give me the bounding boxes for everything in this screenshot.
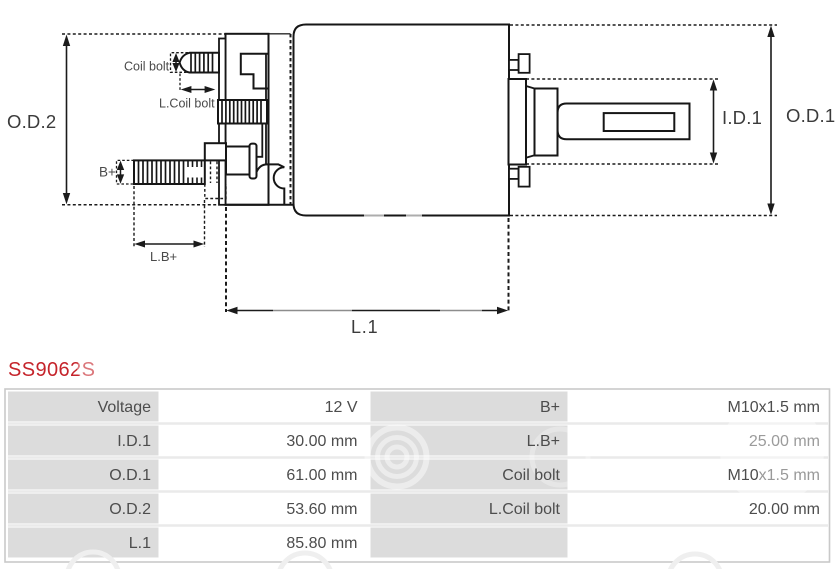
svg-text:L.Coil bolt: L.Coil bolt bbox=[489, 501, 561, 518]
svg-text:L.1: L.1 bbox=[351, 317, 378, 337]
svg-text:B+: B+ bbox=[540, 399, 560, 416]
svg-text:O.D.2: O.D.2 bbox=[7, 111, 56, 132]
svg-text:Coil bolt: Coil bolt bbox=[502, 467, 560, 484]
svg-text:M10x1.5 mm: M10x1.5 mm bbox=[728, 399, 820, 416]
svg-text:85.80 mm: 85.80 mm bbox=[286, 535, 357, 552]
svg-text:B+: B+ bbox=[99, 165, 116, 180]
svg-text:Voltage: Voltage bbox=[98, 399, 151, 416]
svg-text:O.D.2: O.D.2 bbox=[109, 501, 151, 518]
svg-text:O.D.1: O.D.1 bbox=[109, 467, 151, 484]
svg-text:L.B+: L.B+ bbox=[527, 433, 560, 450]
svg-text:I.D.1: I.D.1 bbox=[722, 107, 762, 128]
svg-text:30.00 mm: 30.00 mm bbox=[286, 433, 357, 450]
svg-text:M10x1.5 mm: M10x1.5 mm bbox=[728, 467, 820, 484]
svg-text:61.00 mm: 61.00 mm bbox=[286, 467, 357, 484]
svg-text:20.00 mm: 20.00 mm bbox=[749, 501, 820, 518]
svg-text:53.60 mm: 53.60 mm bbox=[286, 501, 357, 518]
svg-text:L.Coil bolt: L.Coil bolt bbox=[159, 97, 215, 111]
svg-text:I.D.1: I.D.1 bbox=[117, 433, 151, 450]
svg-text:L.B+: L.B+ bbox=[150, 249, 177, 264]
svg-text:L.1: L.1 bbox=[129, 535, 151, 552]
svg-text:Coil bolt: Coil bolt bbox=[124, 60, 170, 74]
svg-text:25.00 mm: 25.00 mm bbox=[749, 433, 820, 450]
svg-text:12 V: 12 V bbox=[325, 399, 358, 416]
svg-text:O.D.1: O.D.1 bbox=[786, 105, 835, 126]
